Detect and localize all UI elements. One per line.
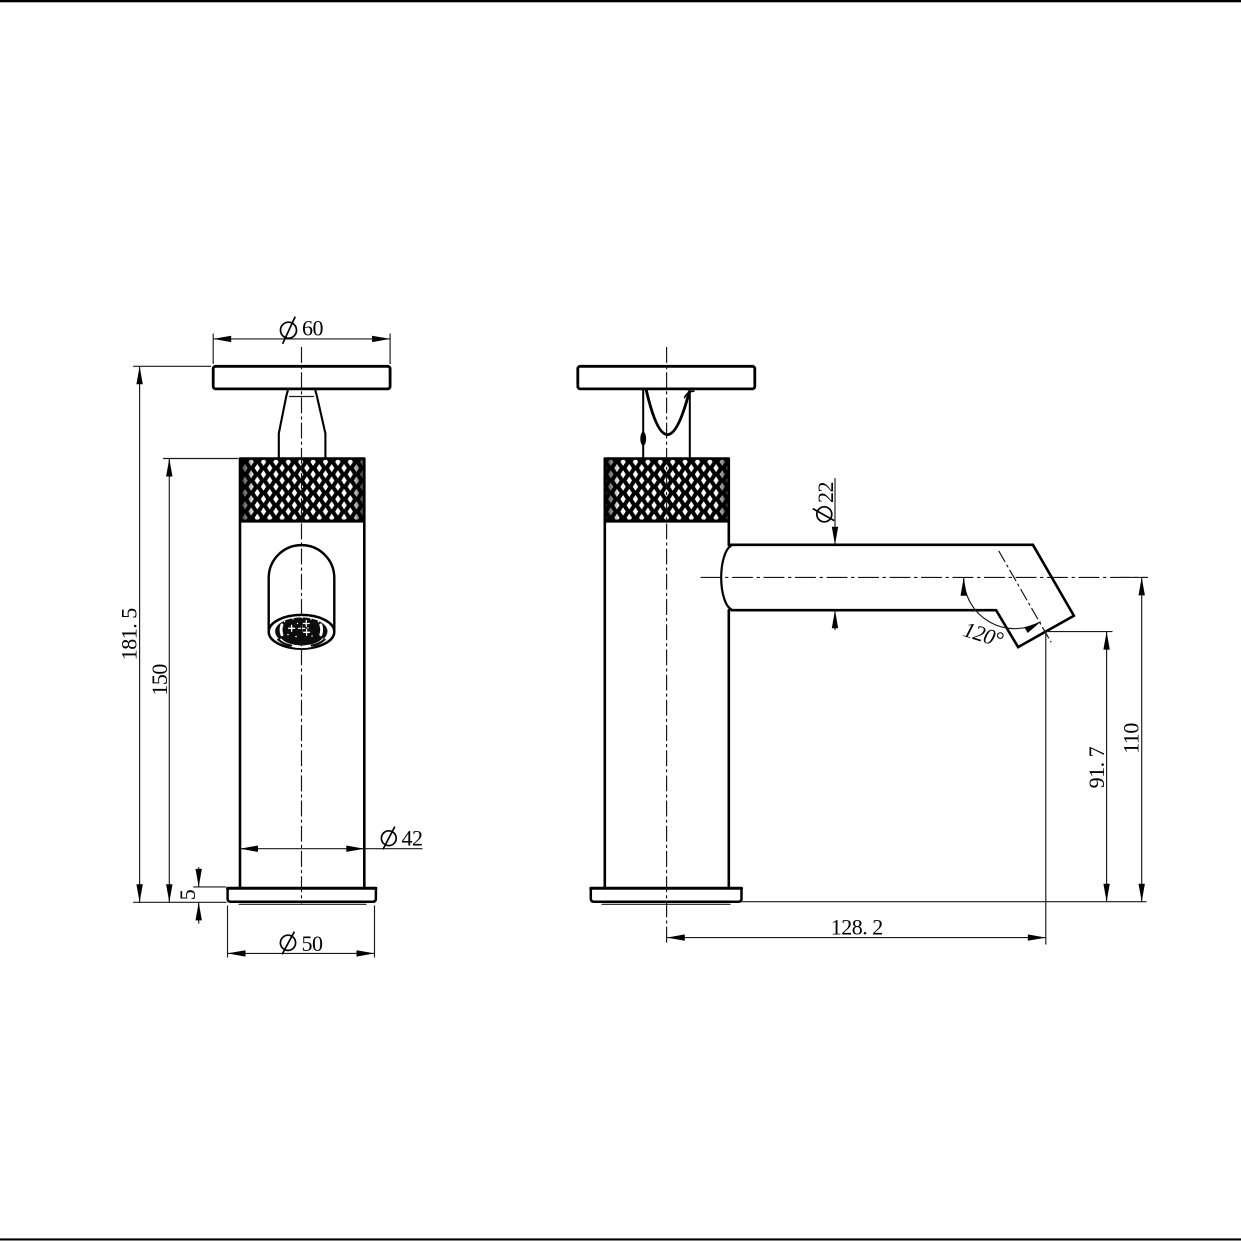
svg-text:60: 60 [302,315,324,340]
svg-text:110: 110 [1119,723,1144,754]
svg-text:128. 2: 128. 2 [831,914,883,939]
svg-text:50: 50 [302,931,324,956]
svg-text:42: 42 [402,826,423,851]
svg-text:150: 150 [147,664,172,696]
svg-text:91. 7: 91. 7 [1084,746,1109,788]
svg-text:181. 5: 181. 5 [117,608,142,661]
svg-text:22: 22 [813,482,838,503]
svg-text:5: 5 [175,889,200,900]
